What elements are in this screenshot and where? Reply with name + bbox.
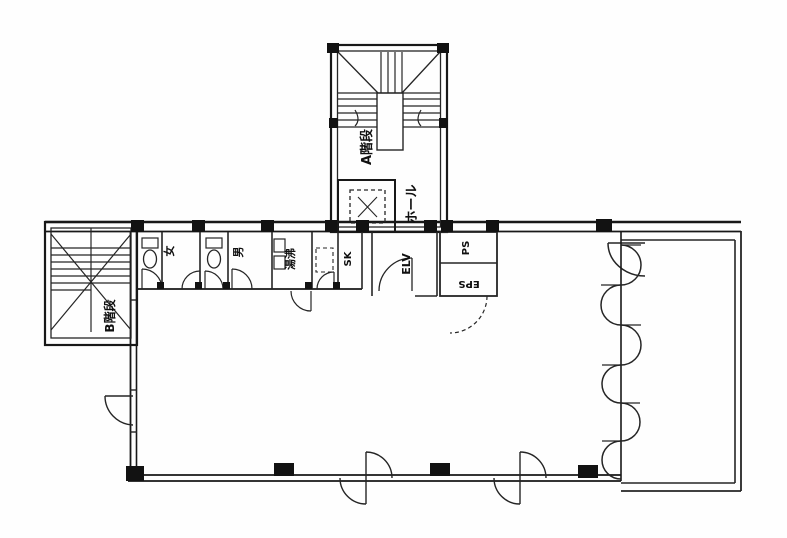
- elevator-label: ELV: [400, 253, 413, 275]
- slop-sink-label: SK: [343, 250, 354, 266]
- left-exterior-door-arc: [105, 396, 133, 425]
- eps-label: EPS: [458, 278, 479, 289]
- floorplan-canvas: A階段 ホール ELV PS EPS 女 男 湯沸 SK B階段: [0, 0, 787, 538]
- kitchenette-label: 湯沸: [283, 248, 297, 270]
- stair-a-label: A階段: [359, 129, 375, 165]
- wc-men-label: 男: [232, 247, 245, 258]
- stair-b-label: B階段: [102, 298, 117, 332]
- columns: [126, 43, 612, 481]
- wc-women-label: 女: [162, 246, 176, 257]
- stair-a-tower: [331, 45, 447, 232]
- counter-dashed-box: [316, 248, 333, 272]
- stair-b-block: [45, 222, 137, 345]
- floorplan-drawing: A階段 ホール ELV PS EPS 女 男 湯沸 SK B階段: [0, 0, 787, 538]
- bottom-double-door-1: [340, 452, 392, 504]
- pipe-shaft-label: PS: [461, 241, 472, 256]
- toilet-fixture-1: [142, 238, 158, 268]
- bottom-double-door-2: [494, 452, 546, 504]
- main-room-walls: [128, 231, 621, 481]
- toilet-fixture-2: [206, 238, 222, 268]
- stair-a-treads: [338, 99, 440, 127]
- hall-label: ホール: [405, 184, 420, 223]
- terrace: [608, 231, 741, 491]
